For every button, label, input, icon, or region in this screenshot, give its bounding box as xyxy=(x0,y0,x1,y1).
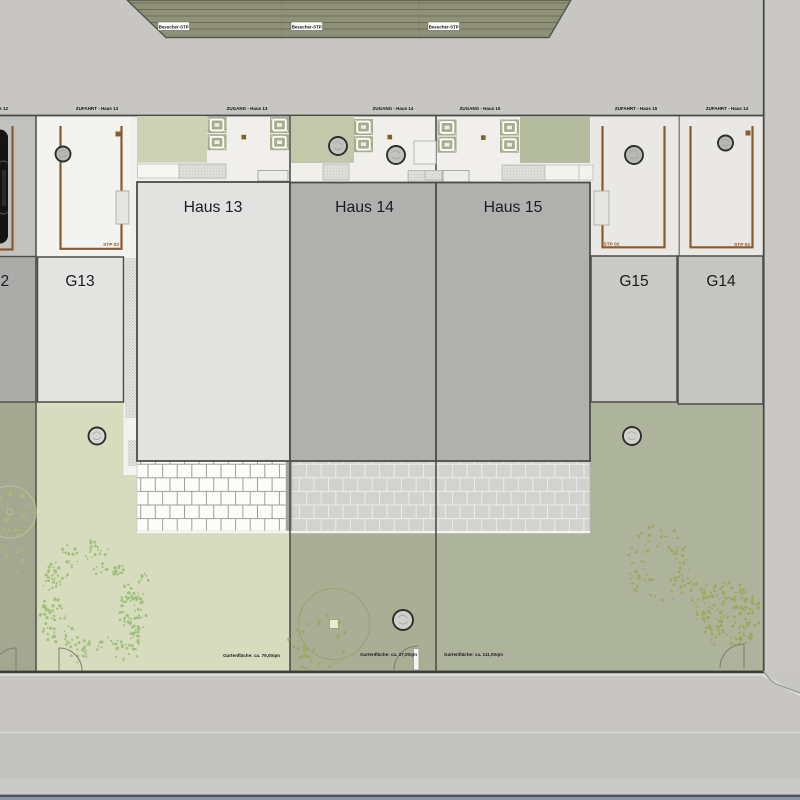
svg-text:G15: G15 xyxy=(619,273,648,290)
svg-text:2: 2 xyxy=(1,273,10,290)
svg-text:G14: G14 xyxy=(706,273,736,290)
svg-text:ZUFAHRT - Haus 13: ZUFAHRT - Haus 13 xyxy=(76,106,119,111)
svg-text:Besucher-STP: Besucher-STP xyxy=(292,24,322,29)
svg-text:ZUFAHRT - Haus 14: ZUFAHRT - Haus 14 xyxy=(706,106,749,111)
svg-text:Besucher-STP: Besucher-STP xyxy=(159,24,189,29)
svg-text:STP 02: STP 02 xyxy=(734,242,750,248)
svg-text:Haus 14: Haus 14 xyxy=(335,199,394,216)
svg-text:Gartenfläche: ca. 37,00qm: Gartenfläche: ca. 37,00qm xyxy=(360,652,417,657)
svg-text:ZUGANG - Haus 13: ZUGANG - Haus 13 xyxy=(227,106,268,111)
svg-text:STP 02: STP 02 xyxy=(604,242,620,248)
svg-text:ZUGANG - Haus 15: ZUGANG - Haus 15 xyxy=(460,106,501,111)
svg-text:ZUGANG - Haus 14: ZUGANG - Haus 14 xyxy=(373,106,414,111)
svg-text:s 12: s 12 xyxy=(0,106,8,111)
svg-text:STP 02: STP 02 xyxy=(103,242,119,248)
svg-text:Gartenfläche: ca. 79,00qm: Gartenfläche: ca. 79,00qm xyxy=(223,653,280,658)
svg-text:Haus 13: Haus 13 xyxy=(184,199,243,216)
svg-text:Haus 15: Haus 15 xyxy=(484,199,543,216)
svg-text:ZUFAHRT - Haus 15: ZUFAHRT - Haus 15 xyxy=(615,106,658,111)
svg-text:Gartenfläche: ca. 111,00qm: Gartenfläche: ca. 111,00qm xyxy=(444,652,503,657)
svg-text:G13: G13 xyxy=(65,273,94,290)
svg-text:Besucher-STP: Besucher-STP xyxy=(429,24,459,29)
